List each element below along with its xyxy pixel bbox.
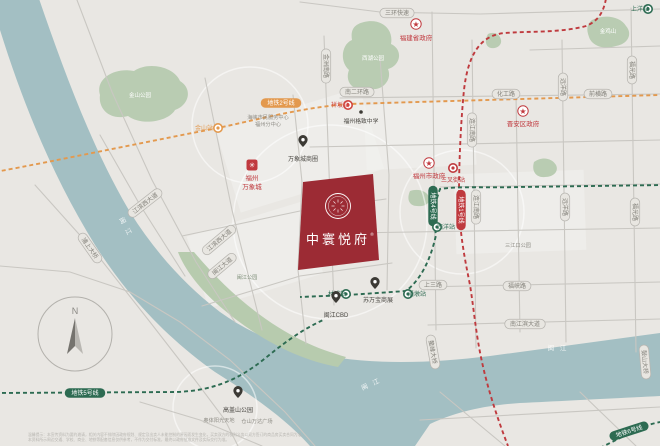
government-label: 福州市政府 [413, 171, 446, 180]
capsule-text: 福光路 [631, 203, 639, 221]
capsule-text: 地铁4号线 [429, 192, 437, 219]
capsule-text: 三环快速 [385, 9, 409, 17]
circle [334, 294, 337, 297]
road-name-capsule: 金洲南路 [321, 49, 330, 83]
circle [451, 166, 454, 169]
project-site-block [298, 174, 379, 270]
road-name-capsule: 上三路 [419, 280, 447, 289]
road-name-capsule: 三环快速 [380, 8, 414, 17]
poi-label: 苏万宝商展 [363, 296, 393, 304]
government-star-icon: ★ [518, 106, 528, 116]
metro-line-capsule: 地铁5号线 [65, 388, 106, 397]
government-label: 福建省政府 [400, 33, 433, 42]
road-name-capsule: 连江南路 [471, 190, 480, 224]
station-label: 金山站 [195, 124, 213, 132]
capsule-text: 南二环路 [345, 88, 369, 96]
circle [301, 138, 304, 141]
area-label: 西湖公园 [362, 54, 385, 62]
government-star-icon: ★ [411, 19, 421, 29]
capsule-text: 福峡路 [508, 282, 526, 290]
area-label: 三江口公园 [505, 242, 531, 249]
project-name: 中寰悦府 [306, 232, 370, 247]
star-glyph: ★ [519, 107, 526, 116]
capsule-text: 南江滨大道 [510, 320, 540, 328]
road-name-capsule: 连江南路 [467, 113, 476, 147]
road-name-capsule: 福光路 [630, 198, 639, 226]
circle [216, 126, 219, 129]
road-name-capsule: 南江滨大道 [505, 319, 546, 328]
road-name-capsule: 远洋路 [558, 73, 567, 101]
area-label: 金鸡山 [600, 27, 617, 35]
metro-station-icon [449, 164, 457, 172]
capsule-text: 上三路 [424, 281, 442, 289]
area-label: 金山公园 [129, 91, 152, 99]
metro-station-icon [214, 124, 222, 132]
station-label: 上洋站 [631, 5, 649, 13]
area-label: 海峡市民服务中心 [247, 113, 289, 121]
road-name-capsule: 化工路 [492, 89, 520, 98]
poi-label: 万象城商圈 [288, 155, 318, 163]
poi-label: 高盖山公园 [223, 406, 253, 414]
capsule-text: 远洋路 [561, 198, 569, 216]
road-name-capsule: 远洋路 [560, 193, 569, 221]
capsule-text: 福光路 [628, 61, 636, 79]
school-label: 福州格致中学 [344, 117, 379, 125]
station-label: 潘墩站 [408, 290, 426, 298]
circle [373, 280, 376, 283]
road-name-capsule: 南二环路 [340, 87, 374, 96]
star-glyph: ★ [412, 20, 419, 29]
star-glyph: ★ [425, 159, 432, 168]
location-map: 金洲南路连江南路连江南路远洋路远洋路福光路福光路南二环路化工路前横路上三路福峡路… [0, 0, 660, 446]
metro-line-capsule: 地铁4号线 [428, 186, 437, 227]
metro-line-capsule: 地铁2号线 [261, 98, 302, 107]
capsule-text: 前横路 [589, 90, 607, 98]
capsule-text: 远洋路 [559, 78, 567, 96]
road-name-capsule: 福光路 [627, 56, 636, 84]
capsule-text: 金洲南路 [322, 54, 330, 78]
mixc-label: 福州 [246, 173, 259, 182]
district-block [363, 100, 476, 171]
mixc-mall-icon: ✳ [247, 160, 258, 171]
capsule-text: 连江南路 [468, 118, 476, 142]
mixc-glyph: ✳ [249, 162, 255, 170]
area-label: 仓山万达广场 [241, 417, 272, 425]
capsule-text: 地铁1号线 [457, 196, 465, 223]
area-label: 闽江公园 [237, 273, 258, 281]
capsule-text: 化工路 [497, 90, 515, 98]
circle [236, 389, 239, 392]
area-label: 福州分中心 [255, 120, 281, 128]
poi-label: 闽江CBD [324, 311, 349, 319]
school-marker [359, 110, 363, 114]
road-name-capsule: 福峡路 [503, 281, 531, 290]
area-label: 奥体阳光天地 [203, 416, 234, 424]
river-name-label: 闽 江 [548, 344, 569, 352]
map-canvas: 金洲南路连江南路连江南路远洋路远洋路福光路福光路南二环路化工路前横路上三路福峡路… [0, 0, 660, 446]
mixc-label: 万象城 [242, 182, 262, 191]
disclaimer-text: 温馨提示：本宣传资料为要约邀请，相关内容不排除因政府规划、规定及出卖人未能控制的… [28, 432, 305, 437]
station-label: 西洋站 [437, 223, 455, 231]
capsule-text: 连江南路 [472, 195, 480, 219]
government-star-icon: ★ [424, 158, 434, 168]
road-name-capsule: 前横路 [584, 89, 612, 98]
capsule-text: 地铁2号线 [267, 99, 294, 107]
compass-n-label: N [72, 306, 79, 316]
capsule-text: 地铁5号线 [71, 389, 98, 397]
station-label: 祥坂站 [331, 101, 349, 109]
disclaimer-text: 本资料所示周边交通、学校、商业、地铁等配套信息仅供参考，不作为交付标准，最终以政… [28, 437, 229, 442]
metro-line-capsule: 地铁1号线 [456, 190, 465, 231]
government-label: 晋安区政府 [507, 119, 540, 128]
